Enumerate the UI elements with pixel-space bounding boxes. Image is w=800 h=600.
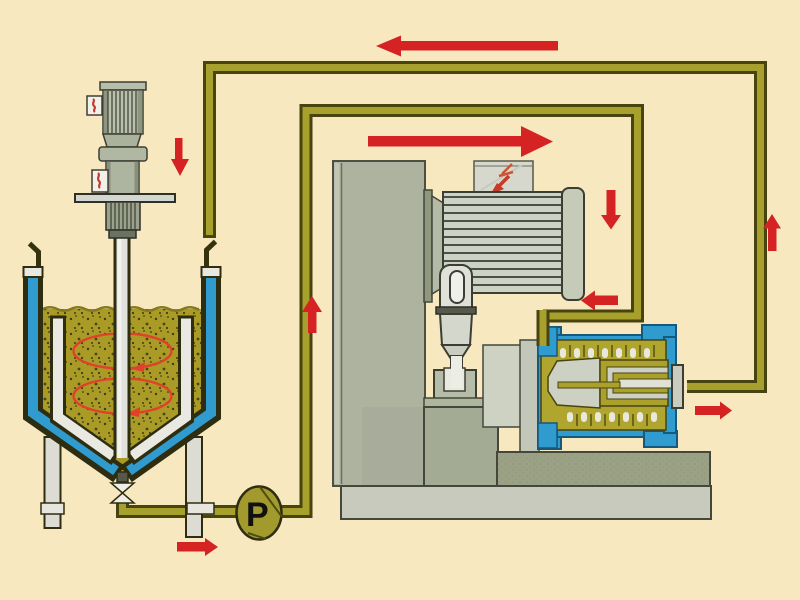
svg-text:P: P [246, 496, 269, 534]
